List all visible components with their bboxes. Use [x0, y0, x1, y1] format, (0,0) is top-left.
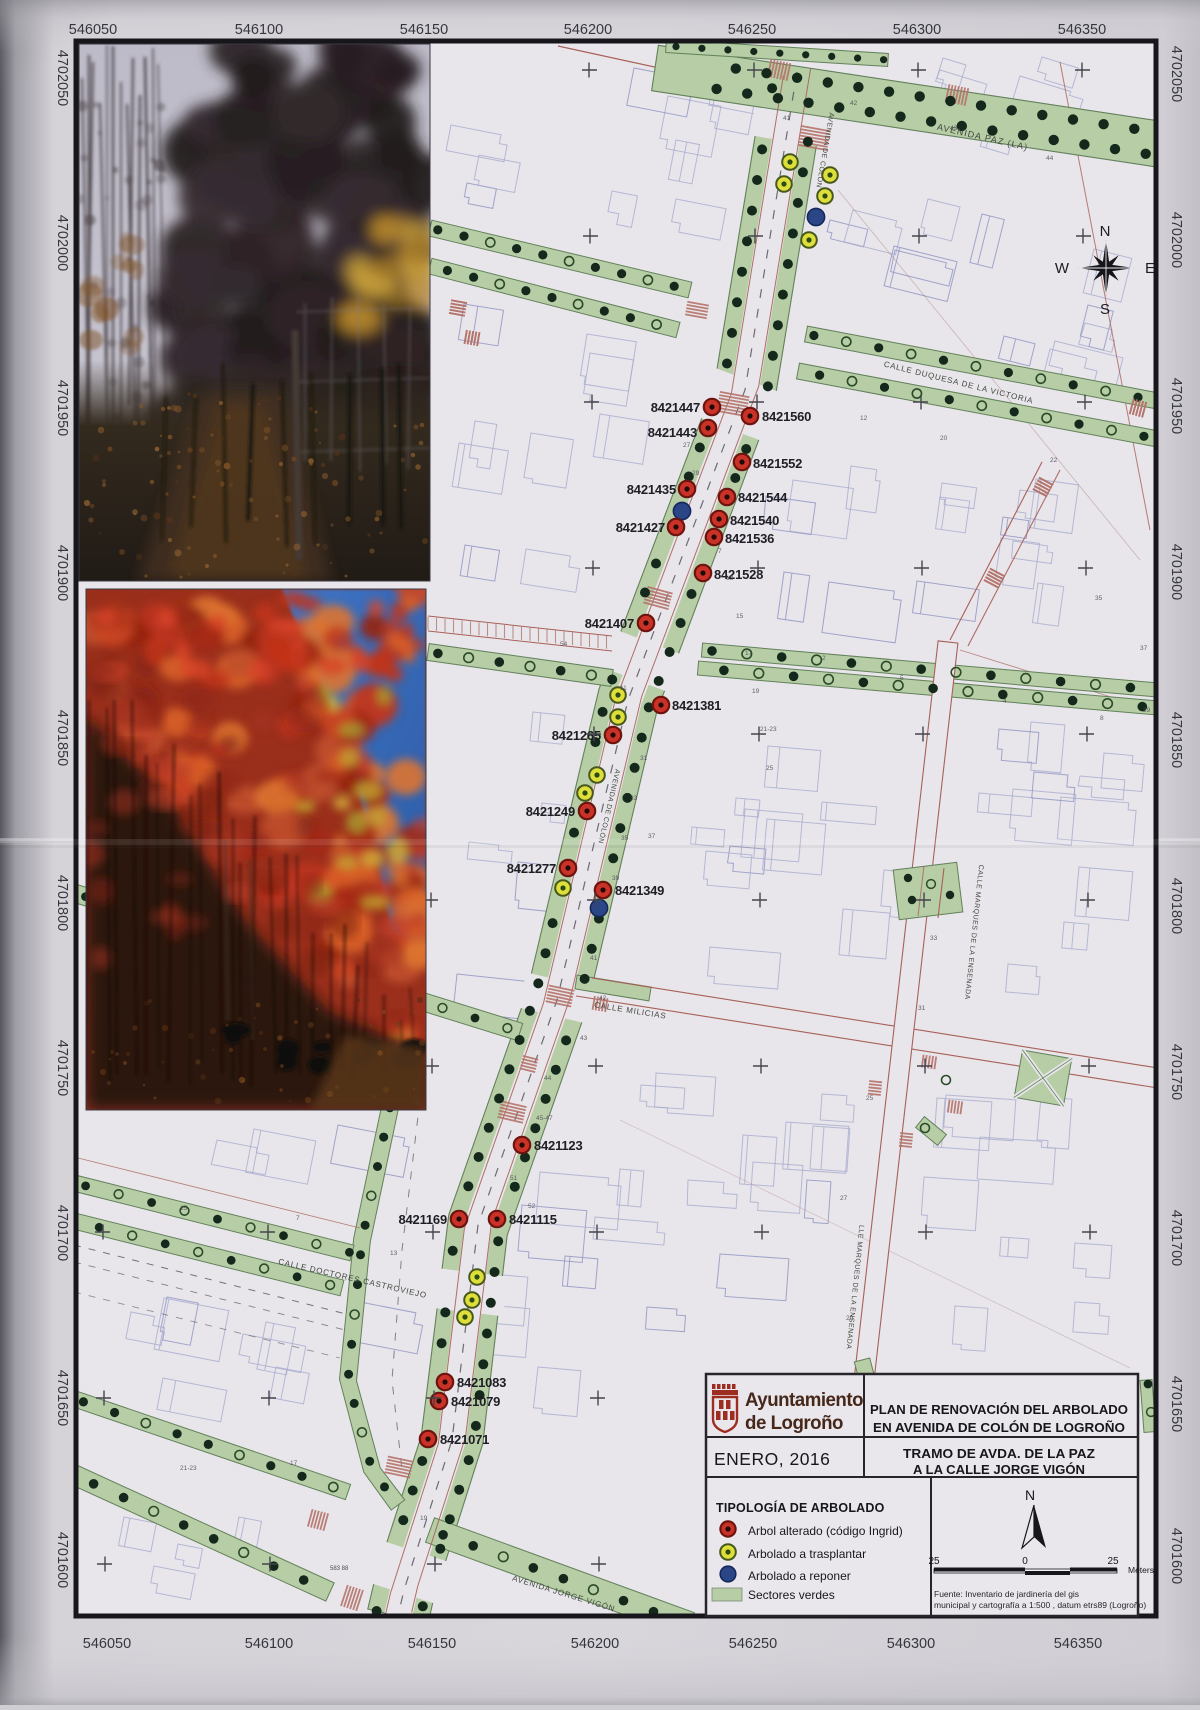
svg-text:546250: 546250	[728, 22, 776, 38]
svg-text:2: 2	[822, 655, 826, 662]
svg-text:4701650: 4701650	[1168, 1376, 1184, 1432]
svg-text:8: 8	[1100, 715, 1104, 722]
svg-text:N: N	[1100, 223, 1111, 240]
svg-text:Arbol alterado (código Ingrid): Arbol alterado (código Ingrid)	[748, 1524, 903, 1538]
svg-text:8421447: 8421447	[651, 400, 700, 415]
svg-text:43: 43	[580, 1035, 588, 1042]
svg-text:20: 20	[940, 435, 948, 442]
svg-text:N: N	[1025, 1487, 1035, 1503]
svg-text:Ayuntamiento: Ayuntamiento	[745, 1390, 863, 1411]
svg-text:583 88: 583 88	[330, 1566, 349, 1572]
svg-text:546300: 546300	[893, 22, 941, 38]
svg-text:15: 15	[736, 613, 744, 620]
svg-text:8421277: 8421277	[507, 861, 556, 876]
svg-text:546150: 546150	[400, 22, 448, 38]
svg-text:4701650: 4701650	[54, 1370, 70, 1426]
svg-text:Arbolado a reponer: Arbolado a reponer	[748, 1569, 851, 1583]
svg-text:4702000: 4702000	[1168, 212, 1184, 268]
svg-text:7: 7	[296, 1215, 300, 1222]
svg-text:7: 7	[718, 548, 722, 555]
svg-text:4701850: 4701850	[1168, 712, 1184, 768]
svg-text:42: 42	[599, 995, 607, 1002]
svg-text:4701950: 4701950	[54, 380, 70, 436]
svg-text:12: 12	[860, 415, 868, 422]
svg-text:546100: 546100	[245, 1636, 293, 1652]
svg-text:5: 5	[900, 675, 904, 682]
svg-text:546050: 546050	[83, 1636, 131, 1652]
svg-text:45-47: 45-47	[536, 1115, 553, 1122]
svg-text:Meters: Meters	[1128, 1565, 1154, 1575]
svg-text:29: 29	[846, 1315, 854, 1322]
svg-text:25: 25	[928, 1556, 940, 1567]
svg-text:33: 33	[930, 935, 938, 942]
svg-text:15: 15	[180, 1205, 188, 1212]
svg-text:546150: 546150	[408, 1636, 456, 1652]
svg-text:37: 37	[1140, 645, 1148, 652]
svg-text:S: S	[1100, 301, 1110, 318]
svg-text:4: 4	[1003, 698, 1007, 705]
svg-text:W: W	[1055, 260, 1070, 277]
svg-text:4701950: 4701950	[1168, 378, 1184, 434]
svg-text:22: 22	[1050, 457, 1058, 464]
svg-text:35: 35	[1095, 595, 1103, 602]
svg-text:4701750: 4701750	[1168, 1044, 1184, 1100]
svg-text:51: 51	[510, 1175, 518, 1182]
svg-text:44: 44	[1046, 155, 1054, 162]
svg-text:25: 25	[866, 1095, 874, 1102]
svg-text:44: 44	[544, 1075, 552, 1082]
svg-text:A LA CALLE JORGE VIGÓN: A LA CALLE JORGE VIGÓN	[913, 1462, 1085, 1477]
svg-text:25: 25	[766, 765, 774, 772]
svg-text:25: 25	[1107, 1556, 1119, 1567]
svg-text:8421349: 8421349	[615, 883, 664, 898]
svg-text:29: 29	[692, 470, 700, 477]
svg-text:Arbolado a trasplantar: Arbolado a trasplantar	[748, 1547, 866, 1561]
svg-text:4701700: 4701700	[1168, 1210, 1184, 1266]
svg-text:8421071: 8421071	[440, 1432, 489, 1447]
svg-text:municipal y cartografía a 1:50: municipal y cartografía a 1:500 , datum …	[934, 1600, 1146, 1610]
svg-text:8421443: 8421443	[648, 425, 697, 440]
svg-text:27: 27	[683, 442, 691, 449]
svg-text:4701600: 4701600	[1168, 1528, 1184, 1584]
svg-text:54: 54	[560, 641, 568, 648]
svg-text:42: 42	[850, 100, 858, 107]
svg-text:13: 13	[390, 1250, 398, 1257]
svg-text:8421536: 8421536	[725, 531, 774, 546]
svg-text:PLAN DE RENOVACIÓN DEL ARBOLAD: PLAN DE RENOVACIÓN DEL ARBOLADO	[870, 1402, 1128, 1417]
svg-text:4701850: 4701850	[54, 710, 70, 766]
svg-text:4701700: 4701700	[54, 1205, 70, 1261]
svg-text:8421552: 8421552	[753, 456, 802, 471]
svg-text:8421540: 8421540	[730, 513, 779, 528]
svg-text:de Logroño: de Logroño	[745, 1413, 843, 1434]
svg-text:27: 27	[840, 1195, 848, 1202]
svg-text:4701800: 4701800	[54, 875, 70, 931]
svg-text:4702000: 4702000	[54, 215, 70, 271]
svg-text:39: 39	[1143, 707, 1151, 714]
svg-text:8421123: 8421123	[534, 1138, 583, 1153]
svg-text:8421115: 8421115	[509, 1212, 557, 1227]
svg-text:546100: 546100	[235, 22, 283, 38]
svg-text:8421079: 8421079	[451, 1394, 500, 1409]
svg-text:4701900: 4701900	[1168, 544, 1184, 600]
svg-text:4702050: 4702050	[1168, 46, 1184, 102]
svg-text:4701750: 4701750	[54, 1040, 70, 1096]
svg-text:8421560: 8421560	[762, 409, 811, 424]
svg-text:4701600: 4701600	[54, 1532, 70, 1588]
svg-text:13: 13	[726, 575, 734, 582]
svg-text:TRAMO DE AVDA. DE LA PAZ: TRAMO DE AVDA. DE LA PAZ	[903, 1447, 1095, 1461]
svg-text:4702050: 4702050	[54, 50, 70, 106]
svg-text:4701900: 4701900	[54, 545, 70, 601]
svg-text:31: 31	[918, 1005, 926, 1012]
svg-text:ENERO, 2016: ENERO, 2016	[714, 1449, 830, 1469]
svg-text:21-23: 21-23	[760, 726, 777, 733]
svg-text:8421435: 8421435	[627, 482, 676, 497]
svg-text:11: 11	[620, 685, 627, 692]
svg-text:8421427: 8421427	[616, 520, 665, 535]
svg-text:8421083: 8421083	[457, 1375, 506, 1390]
svg-text:546200: 546200	[571, 1636, 619, 1652]
svg-text:Fuente: Inventario de jardiner: Fuente: Inventario de jardinería del gis	[934, 1589, 1079, 1599]
svg-text:4701800: 4701800	[1168, 878, 1184, 934]
svg-text:546300: 546300	[887, 1636, 935, 1652]
svg-text:39: 39	[612, 875, 620, 882]
svg-text:546200: 546200	[564, 22, 612, 38]
svg-text:546350: 546350	[1058, 22, 1106, 38]
svg-text:41: 41	[783, 115, 791, 122]
svg-text:8421544: 8421544	[738, 490, 788, 505]
svg-text:33: 33	[630, 795, 638, 802]
svg-text:43: 43	[950, 125, 958, 132]
svg-text:546050: 546050	[69, 22, 117, 38]
svg-text:21-23: 21-23	[180, 1465, 197, 1472]
svg-text:EN AVENIDA DE COLÓN DE LOGROÑO: EN AVENIDA DE COLÓN DE LOGROÑO	[873, 1420, 1125, 1435]
svg-text:8421407: 8421407	[585, 616, 634, 631]
svg-text:41: 41	[590, 955, 598, 962]
svg-text:8421381: 8421381	[672, 698, 721, 713]
svg-text:19: 19	[420, 1515, 428, 1522]
svg-text:8421528: 8421528	[714, 567, 763, 582]
svg-text:8421169: 8421169	[399, 1212, 448, 1227]
svg-text:Sectores verdes: Sectores verdes	[748, 1588, 835, 1602]
svg-text:17: 17	[745, 650, 753, 657]
svg-text:546350: 546350	[1054, 1636, 1102, 1652]
svg-text:0: 0	[1022, 1556, 1028, 1567]
svg-text:TIPOLOGÍA DE ARBOLADO: TIPOLOGÍA DE ARBOLADO	[716, 1500, 885, 1515]
svg-text:8421249: 8421249	[526, 804, 575, 819]
svg-text:17: 17	[290, 1460, 298, 1467]
svg-text:31: 31	[640, 755, 648, 762]
svg-text:546250: 546250	[729, 1636, 777, 1652]
svg-text:37: 37	[648, 833, 656, 840]
svg-text:19: 19	[752, 688, 760, 695]
svg-text:52: 52	[528, 1203, 536, 1210]
